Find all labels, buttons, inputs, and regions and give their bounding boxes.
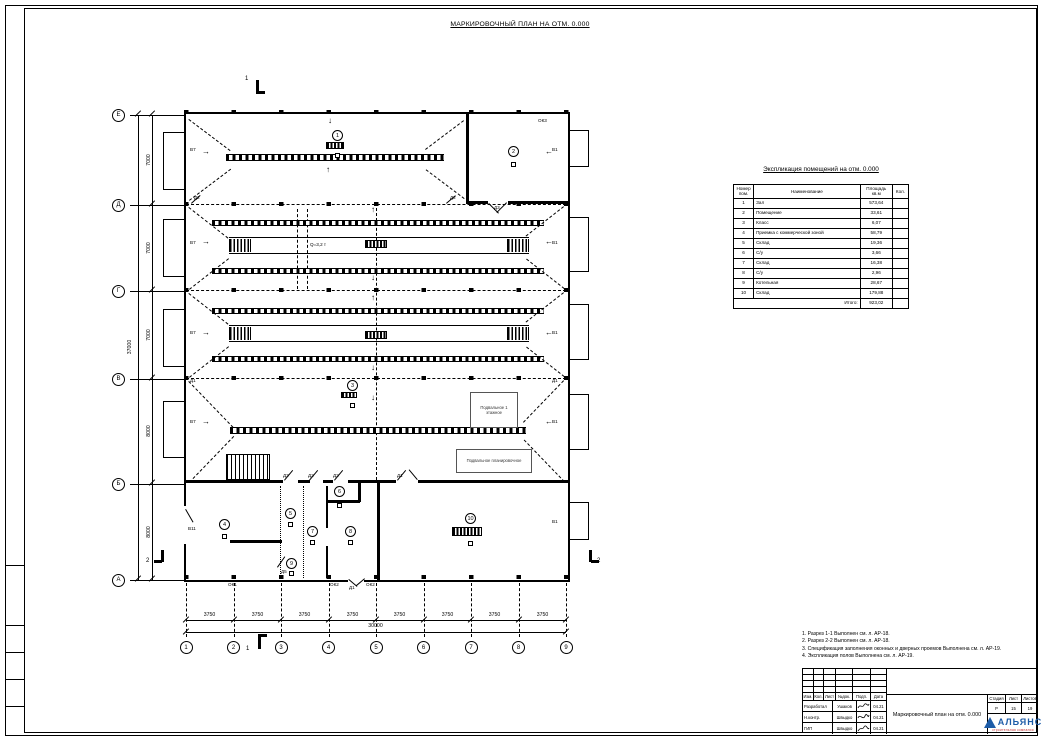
gate-left [163,401,185,458]
partition-thick [377,483,380,580]
equipment-symbol [341,392,357,398]
room-name-cell: Склад [754,238,861,248]
general-notes: 1. Разрез 1-1 Выполнен см. л. АР-18.2. Р… [802,631,1040,660]
tb-header: Изм. [803,693,814,701]
schedule-body: 1 Зал 573,64 2 Помещение 33,61 3 Класс 6… [734,198,909,298]
tb-drawing-title: Маркировочный план на отм. 0.000 [887,695,988,734]
room-qty-cell [892,208,908,218]
room-qty-cell [892,238,908,248]
tb-header: Кол. [814,693,824,701]
room-number-cell: 3 [734,218,754,228]
schedule-row: 9 Котельная 28,67 [734,278,909,288]
gate-right [569,502,589,540]
axis-ext-line [424,583,425,637]
col-header-num: Номер пом. [734,185,754,199]
room-tag: 9 [286,558,297,569]
axis-bubble-col: 6 [417,641,430,654]
gate-label: В1 [552,241,558,246]
schedule-row: 10 Склад 179,88 [734,288,909,298]
door-label: Д2 [333,474,339,479]
dim-text-total: 37000 [126,327,134,367]
section-mark-label: 1 [245,76,248,82]
tb-role: ГИП [803,723,833,734]
tb-name: Ушаков [833,701,857,712]
room-qty-cell [892,288,908,298]
room-tag: 3 [347,380,358,391]
room-qty-cell [892,228,908,238]
room-number-cell: 4 [734,228,754,238]
floor-drain-symbol [289,571,294,576]
crane-end [507,327,529,340]
axis-ext-line [519,583,520,637]
schedule-row: 5 Склад 19,36 [734,238,909,248]
floor-drain-symbol [468,541,473,546]
room-number-cell: 8 [734,268,754,278]
schedule-row: 2 Помещение 33,61 [734,208,909,218]
door-label: Д2 [450,196,456,201]
room-schedule-table: Номер пом. Наименование Площадь кв.м Кол… [733,184,909,309]
section-mark [258,634,267,637]
door-label: Д1 [190,379,196,384]
dim-text: 7000 [145,140,153,180]
col-header-qty: Кол. [892,185,908,199]
dim-text: 3750 [281,612,328,618]
tb-role: Н.контр. [803,712,833,723]
gate-left [163,219,185,277]
gate-label: В1 [552,331,558,336]
section-mark-label: 1 [246,646,249,652]
axis-bubble-row: Д [112,199,125,212]
axis-bubble-row: А [112,574,125,587]
axis-bubble-col: 5 [370,641,383,654]
arrow-down-icon: ↓ [371,274,375,282]
note-line: 1. Разрез 1-1 Выполнен см. л. АР-18. [802,631,1040,638]
tb-header: Подп. [853,693,871,701]
schedule-row: 3 Класс 6,07 [734,218,909,228]
plan-note-box: Подвальное 1 этажное [470,392,518,428]
axis-bubble-col: 4 [322,641,335,654]
crane-capacity-label: Q=3,2 т [310,243,326,248]
room-tag: 8 [345,526,356,537]
tb-header: №док. [836,693,853,701]
room-number-cell: 1 [734,198,754,208]
tb-signature [857,712,871,723]
conveyor-strip-2 [230,427,526,434]
tb-sheets-value: 19 [1022,703,1038,714]
axis-bubble-col: 2 [227,641,240,654]
axis-ext-line [281,583,282,637]
note-line: 2. Разрез 2-2 Выполнен см. л. АР-18. [802,638,1040,645]
rack-strip [212,268,544,274]
company-logo: АЛЬЯНС строительная компания [988,714,1038,734]
room-number-cell: 2 [734,208,754,218]
window-label: ОК1 [228,583,237,588]
arrow-down-icon: ↓ [371,394,375,402]
room-name-cell: Склад [754,288,861,298]
room-area-cell: 58,79 [860,228,892,238]
room-tag: 5 [285,508,296,519]
room-number-cell: 9 [734,278,754,288]
dim-text-total: 30000 [352,623,399,629]
room-tag: 1 [332,130,343,141]
frame-divider [5,706,24,707]
axis-ext-line [234,583,235,637]
gate-right [569,394,589,450]
tb-date: 04.21 [871,712,887,723]
dim-line-total-h [186,632,566,633]
section-mark [258,636,261,649]
room2-wall-b1 [466,201,488,204]
schedule-row: 6 С/у 3,66 [734,248,909,258]
col-header-name: Наименование [754,185,861,199]
gate-label: В7 [190,420,196,425]
tb-sheet-value: 15 [1006,703,1022,714]
schedule-row: 8 С/у 2,96 [734,268,909,278]
room-area-cell: 2,96 [860,268,892,278]
dim-text: 7000 [145,315,153,355]
gate-right [569,217,589,272]
drawing-sheet: МАРКИРОВОЧНЫЙ ПЛАН НА ОТМ. 0.000 Q=3,2 т [0,0,1043,741]
tb-name: Швыдко [833,723,857,734]
door-label: Д3 [494,206,500,211]
room-qty-cell [892,268,908,278]
logo-triangle-icon [984,717,996,728]
door-label: Д5 [281,570,287,575]
gate-left [163,309,185,367]
wall-b [186,480,283,483]
schedule-row: 7 Склад 16,38 [734,258,909,268]
wall-b [323,480,333,483]
total-value-cell: 923,02 [860,298,892,308]
crane-end [507,239,529,252]
room-area-cell: 19,36 [860,238,892,248]
company-tagline: строительная компания [992,728,1034,732]
room-name-cell: Помещение [754,208,861,218]
dim-text: 7000 [145,228,153,268]
ramp-line [230,540,282,543]
gate-label: В1 [552,148,558,153]
axis-line-d [186,204,566,205]
axis-bubble-row: В [112,373,125,386]
partition [326,486,328,528]
frame-divider [5,679,24,680]
room-area-cell: 179,88 [860,288,892,298]
gate-label: В11 [188,527,196,532]
room-name-cell: Склад [754,258,861,268]
dim-text: 3750 [519,612,566,618]
window-label: ОК3 [538,119,547,124]
small-room-wall [326,500,360,503]
gate-label: В7 [190,148,196,153]
gate-label: В1 [552,420,558,425]
room2-wall-b2 [508,201,570,204]
wall-b [298,480,310,483]
axis-bubble-row: Е [112,109,125,122]
gate-label: В1 [552,520,558,525]
pilaster-marks-top [184,110,570,114]
dim-text: 3750 [376,612,423,618]
tb-signature [857,723,871,734]
room-tag: 2 [508,146,519,157]
room-name-cell: Зал [754,198,861,208]
partition-stud [303,486,304,578]
axis-bubble-row: Б [112,478,125,491]
dim-text: 8000 [145,512,153,552]
dim-text: 3750 [471,612,518,618]
section-mark-label: 2 [146,558,149,564]
arrow-up-icon: ↑ [326,166,330,174]
room-tag: 7 [307,526,318,537]
room-number-cell: 7 [734,258,754,268]
dim-text: 3750 [186,612,233,618]
frame-divider [5,565,24,566]
tb-role: Разработал [803,701,833,712]
room-name-cell: С/у [754,268,861,278]
tb-signature [857,701,871,712]
tb-sheets-label: Листов [1022,695,1038,703]
section-mark [591,560,599,563]
axis-bubble-col: 9 [560,641,573,654]
tb-header: Лист [824,693,836,701]
frame-divider [5,625,24,626]
room-qty-cell [892,278,908,288]
arrow-up-icon: ↑ [371,206,375,214]
room-area-cell: 33,61 [860,208,892,218]
wall-b [348,480,396,483]
equipment-symbol [452,527,482,536]
room-area-cell: 28,67 [860,278,892,288]
room-qty-cell [892,218,908,228]
window-label: ОК2 [366,583,375,588]
room-number-cell: 5 [734,238,754,248]
section-mark [154,560,162,563]
floor-drain-symbol [335,153,340,158]
floor-drain-symbol [337,503,342,508]
room-name-cell: Котельная [754,278,861,288]
rack-strip [212,308,544,314]
section-mark [256,91,265,94]
equipment-symbol [365,331,387,339]
room-tag: 10 [465,513,476,524]
axis-bubble-row: Г [112,285,125,298]
room-qty-cell [892,248,908,258]
schedule-row: 1 Зал 573,64 [734,198,909,208]
axis-bubble-col: 8 [512,641,525,654]
room-qty-cell [892,258,908,268]
schedule-title: Экспликация помещений на отм. 0.000 [733,166,909,173]
arrow-down-icon: ↓ [328,117,332,125]
axis-bubble-col: 1 [180,641,193,654]
equipment-symbol [365,240,387,248]
tb-header: Дата [871,693,887,701]
arrow-right-icon: → [202,418,210,426]
partition [326,546,328,578]
plan-note-box: Подвальное планировочное [456,449,532,473]
floor-drain-symbol [288,522,293,527]
frame-divider [5,652,24,653]
crane-end [229,239,251,252]
dim-text: 3750 [234,612,281,618]
axis-bubble-col: 7 [465,641,478,654]
arrow-right-icon: → [202,329,210,337]
dim-text: 3750 [424,612,471,618]
axis-bubble-col: 3 [275,641,288,654]
wall-b [418,480,568,483]
schedule-header-row: Номер пом. Наименование Площадь кв.м Кол… [734,185,909,199]
room-area-cell: 16,38 [860,258,892,268]
gate-label: В7 [190,331,196,336]
room-tag: 6 [334,486,345,497]
room-area-cell: 573,64 [860,198,892,208]
room-number-cell: 10 [734,288,754,298]
dim-text: 8000 [145,411,153,451]
door-label: Д3 [283,474,289,479]
room-qty-cell [892,198,908,208]
page-title: МАРКИРОВОЧНЫЙ ПЛАН НА ОТМ. 0.000 [380,21,660,28]
title-block: Изм. Кол. Лист №док. Подп. Дата Разработ… [802,668,1037,733]
rack-strip [212,356,544,362]
room-name-cell: С/у [754,248,861,258]
door-label: Д2 [308,474,314,479]
tb-name: Швыдко [833,712,857,723]
tb-date: 04.21 [871,701,887,712]
tb-stage-value: Р [988,703,1006,714]
room-name-cell: Приемка с коммерческой зоной [754,228,861,238]
tb-sheet-label: Лист [1006,695,1022,703]
door-label: Д2 [194,196,200,201]
arrow-right-icon: → [202,148,210,156]
room-number-cell: 6 [734,248,754,258]
rack-strip [212,220,544,226]
schedule-row: 4 Приемка с коммерческой зоной 58,79 [734,228,909,238]
arrow-up-icon: ↑ [371,294,375,302]
arrow-down-icon: ↓ [371,364,375,372]
door-label: Д1 [552,379,558,384]
tb-designation [887,669,1038,695]
gate-right [569,304,589,360]
floor-drain-symbol [348,540,353,545]
note-line: 4. Экспликация полов Выполнена см. л. АР… [802,653,1040,660]
dim-line-total-v [138,115,139,580]
door-label: Д1 [349,586,355,591]
gate-label: В7 [190,241,196,246]
room-name-cell: Класс [754,218,861,228]
total-qty-cell [892,298,908,308]
tb-date: 04.21 [871,723,887,734]
floor-drain-symbol [222,534,227,539]
total-label-cell: Итого: [734,298,861,308]
axis-ext-line [329,583,330,637]
company-name: АЛЬЯНС [998,718,1043,727]
floor-drain-symbol [350,403,355,408]
door-label: Д1 [397,474,403,479]
crane-end [229,327,251,340]
equipment-symbol [326,142,344,149]
tb-stage-label: Стадия [988,695,1006,703]
schedule-total-row: Итого: 923,02 [734,298,909,308]
room-area-cell: 6,07 [860,218,892,228]
arrow-right-icon: → [202,238,210,246]
gate-right [569,130,589,167]
gate-left [163,132,185,190]
floor-drain-symbol [310,540,315,545]
col-header-area: Площадь кв.м [860,185,892,199]
floor-drain-symbol [511,162,516,167]
room-area-cell: 3,66 [860,248,892,258]
note-line: 3. Спецификация заполнения оконных и две… [802,646,1040,653]
dim-text: 3750 [329,612,376,618]
window-label: ОК2 [330,583,339,588]
staircase [226,454,270,480]
axis-ext-line [471,583,472,637]
room2-wall-v [466,114,469,203]
room-tag: 4 [219,519,230,530]
